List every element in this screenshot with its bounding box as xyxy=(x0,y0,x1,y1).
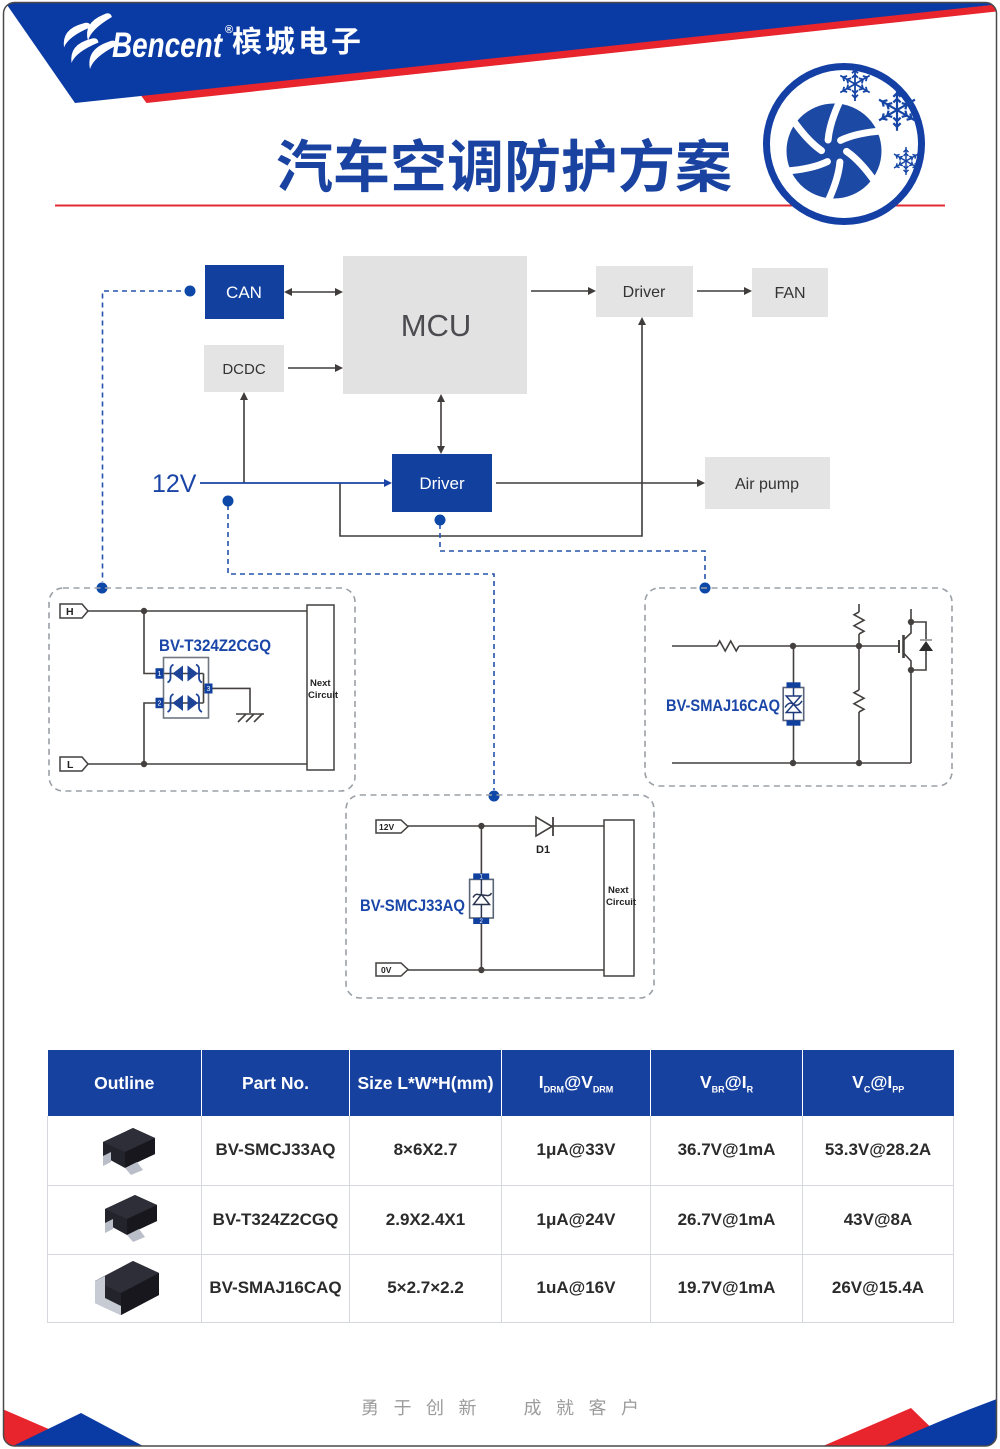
svg-text:3: 3 xyxy=(207,686,211,693)
svg-text:Circuit: Circuit xyxy=(308,690,339,701)
svg-text:Next: Next xyxy=(608,885,629,896)
svg-text:BV-SMAJ16CAQ: BV-SMAJ16CAQ xyxy=(666,696,780,715)
svg-text:DCDC: DCDC xyxy=(222,361,265,378)
svg-text:Circuit: Circuit xyxy=(606,897,637,908)
svg-text:Next: Next xyxy=(310,678,331,689)
svg-text:Air pump: Air pump xyxy=(735,476,799,493)
svg-text:Driver: Driver xyxy=(623,284,666,301)
svg-text:1: 1 xyxy=(158,671,162,678)
svg-text:D1: D1 xyxy=(536,844,550,856)
svg-text:MCU: MCU xyxy=(401,308,472,343)
svg-text:2: 2 xyxy=(158,701,162,708)
svg-text:12V: 12V xyxy=(379,822,394,832)
svg-text:12V: 12V xyxy=(152,470,197,498)
svg-text:Bencent: Bencent xyxy=(112,26,223,65)
svg-text:0V: 0V xyxy=(381,965,392,975)
svg-text:BV-T324Z2CGQ: BV-T324Z2CGQ xyxy=(159,636,271,655)
svg-text:Driver: Driver xyxy=(419,474,465,493)
svg-text:FAN: FAN xyxy=(774,285,805,302)
svg-text:®: ® xyxy=(225,24,233,36)
svg-text:L: L xyxy=(67,759,74,771)
svg-text:BV-SMCJ33AQ: BV-SMCJ33AQ xyxy=(360,896,465,915)
svg-text:H: H xyxy=(66,606,74,618)
svg-text:CAN: CAN xyxy=(226,283,262,302)
